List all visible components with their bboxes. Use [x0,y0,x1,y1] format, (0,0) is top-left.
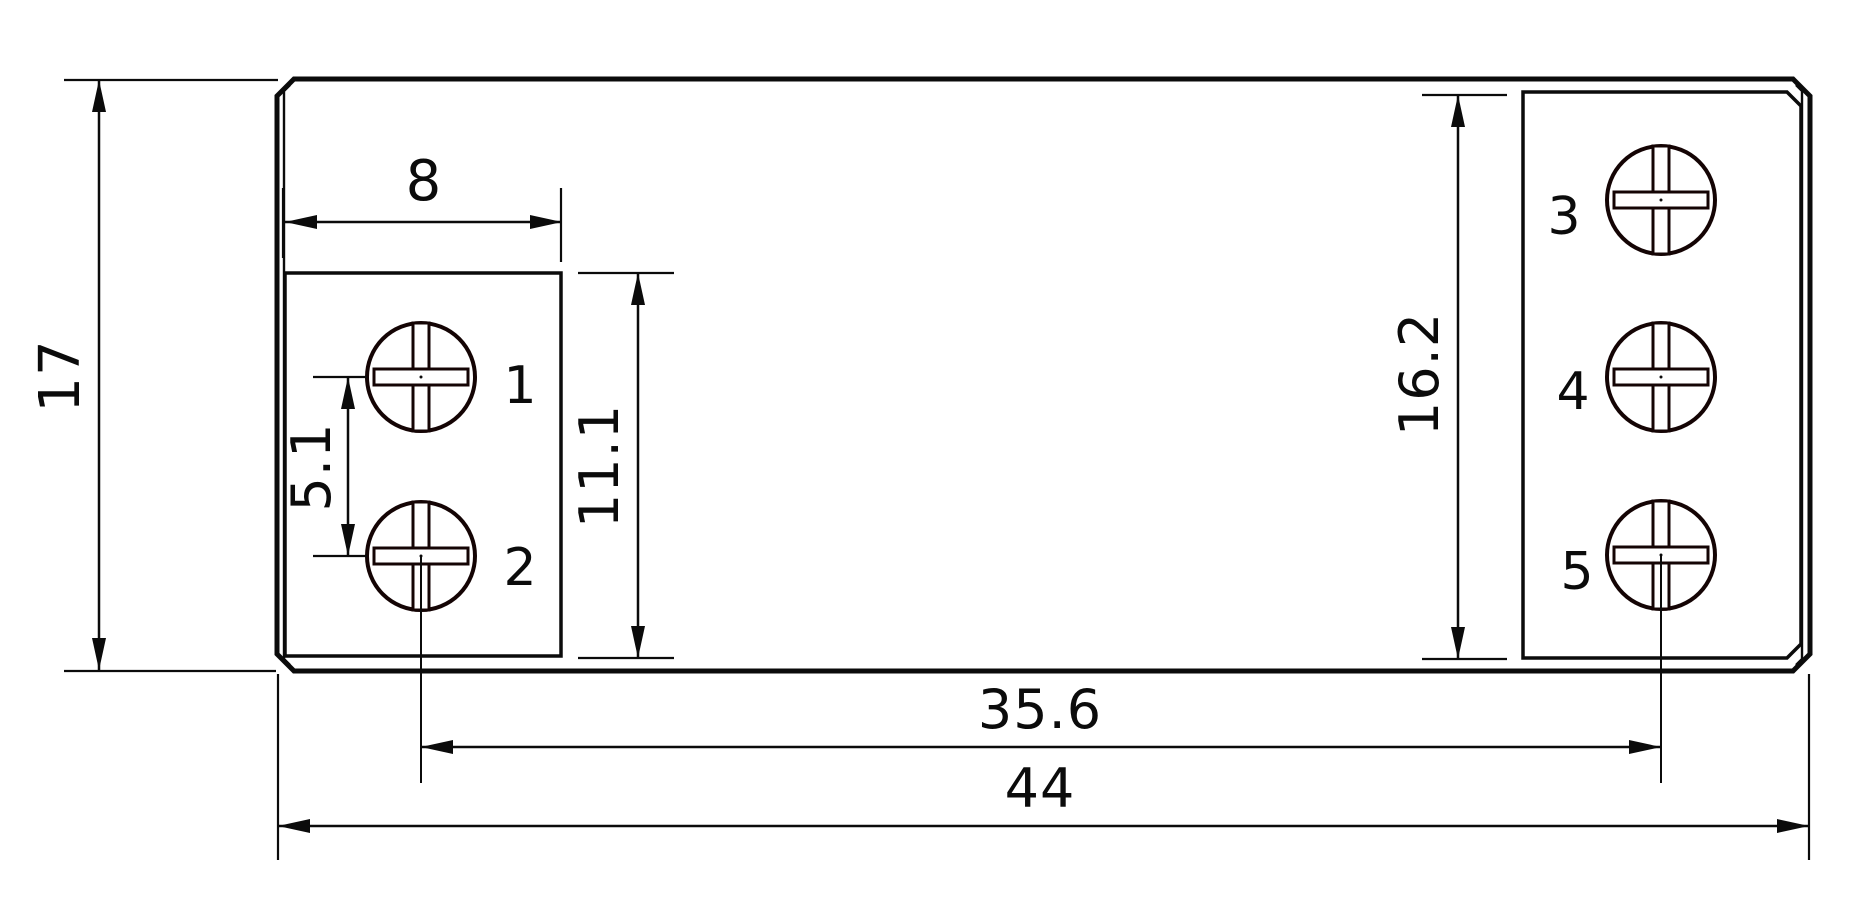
dim-8-label: 8 [406,149,443,214]
dim-44-label: 44 [1005,757,1076,820]
screw-1-center-dot [420,376,423,379]
screw-terminal-4 [1607,323,1715,431]
terminal-label-2: 2 [503,538,536,598]
terminal-label-4: 4 [1556,362,1589,422]
terminal-label-1: 1 [503,356,536,416]
dim-11-1-label: 11.1 [568,404,631,528]
dim-35-6-label: 35.6 [978,678,1102,741]
screw-terminal-3 [1607,146,1715,254]
screw-3-center-dot [1660,199,1663,202]
dimension-body-height: 17 [28,80,278,671]
dim-16-2-label: 16.2 [1388,312,1451,436]
screw-4-center-dot [1660,376,1663,379]
terminal-label-3: 3 [1547,187,1580,247]
technical-drawing: 1 2 3 4 5 17 8 5.1 11.1 16.2 [0,0,1866,901]
terminal-label-5: 5 [1560,542,1593,602]
screw-terminal-1 [367,323,475,431]
drawing-canvas: 1 2 3 4 5 17 8 5.1 11.1 16.2 [0,0,1866,901]
dim-17-label: 17 [28,339,93,412]
dim-5-1-label: 5.1 [280,423,343,512]
